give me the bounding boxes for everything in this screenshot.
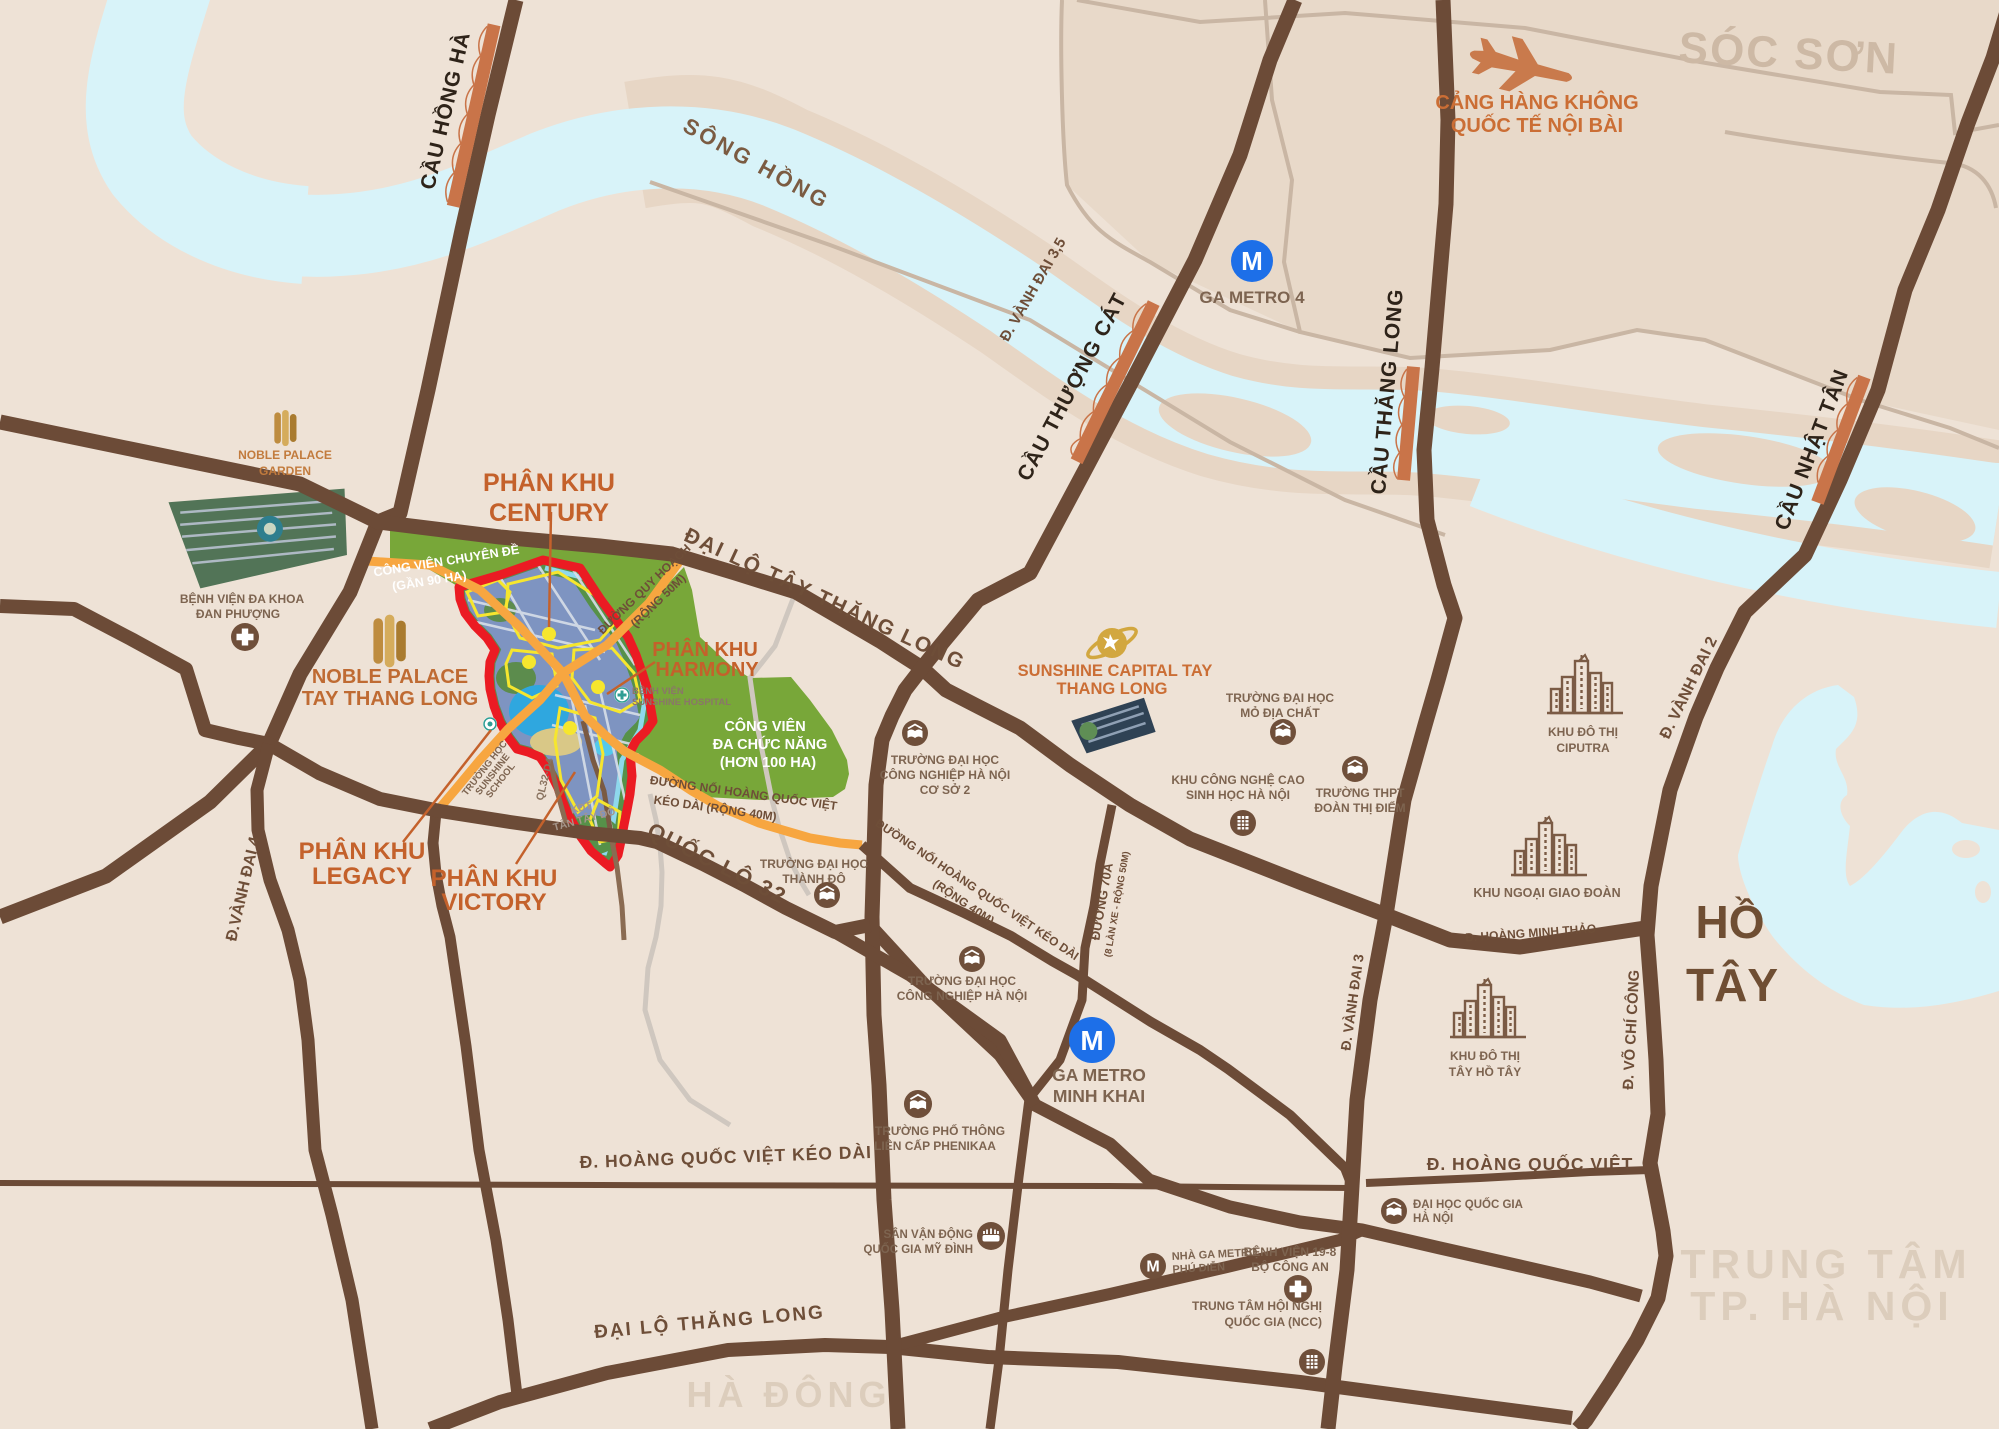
- svg-text:GA METRO: GA METRO: [1052, 1065, 1146, 1085]
- svg-text:TRUNG TÂM HỘI NGHỊ: TRUNG TÂM HỘI NGHỊ: [1192, 1298, 1322, 1313]
- svg-text:BỆNH VIỆN ĐA KHOA: BỆNH VIỆN ĐA KHOA: [180, 591, 305, 606]
- svg-text:GA METRO 4: GA METRO 4: [1199, 288, 1305, 307]
- svg-text:SINH HỌC HÀ NỘI: SINH HỌC HÀ NỘI: [1186, 787, 1290, 802]
- svg-text:CÔNG NGHIỆP HÀ NỘI: CÔNG NGHIỆP HÀ NỘI: [880, 767, 1010, 782]
- svg-text:Đ. HOÀNG QUỐC VIỆT: Đ. HOÀNG QUỐC VIỆT: [1427, 1153, 1634, 1174]
- svg-text:HÀ ĐÔNG: HÀ ĐÔNG: [687, 1373, 892, 1415]
- svg-text:ĐAN PHƯỢNG: ĐAN PHƯỢNG: [196, 607, 280, 621]
- svg-text:TÂY: TÂY: [1686, 959, 1778, 1011]
- svg-text:TRƯỜNG ĐẠI HỌC: TRƯỜNG ĐẠI HỌC: [891, 752, 1000, 767]
- svg-text:HÀ NỘI: HÀ NỘI: [1413, 1212, 1453, 1225]
- svg-text:MINH KHAI: MINH KHAI: [1053, 1086, 1145, 1106]
- svg-text:TÂY HỒ TÂY: TÂY HỒ TÂY: [1449, 1064, 1521, 1079]
- svg-text:M: M: [1146, 1259, 1159, 1276]
- svg-text:LIÊN CẤP PHENIKAA: LIÊN CẤP PHENIKAA: [874, 1138, 996, 1153]
- svg-text:ĐOÀN THỊ ĐIỂM: ĐOÀN THỊ ĐIỂM: [1314, 800, 1405, 815]
- svg-text:PHÂN KHU: PHÂN KHU: [431, 864, 558, 892]
- svg-text:TRƯỜNG ĐẠI HỌC: TRƯỜNG ĐẠI HỌC: [760, 856, 869, 871]
- svg-text:PHÚ DIỄN: PHÚ DIỄN: [1172, 1260, 1225, 1276]
- svg-text:SÂN VẬN ĐỘNG: SÂN VẬN ĐỘNG: [884, 1228, 974, 1241]
- svg-text:CÔNG VIÊN: CÔNG VIÊN: [724, 717, 805, 735]
- svg-text:TRƯỜNG THPT: TRƯỜNG THPT: [1316, 785, 1406, 800]
- svg-text:TRƯỜNG PHỐ THÔNG: TRƯỜNG PHỐ THÔNG: [875, 1123, 1005, 1138]
- svg-text:THANG LONG: THANG LONG: [1057, 680, 1168, 698]
- svg-text:CƠ SỞ 2: CƠ SỞ 2: [920, 782, 971, 797]
- svg-text:PHÂN KHU: PHÂN KHU: [299, 837, 426, 865]
- svg-text:NOBLE PALACE: NOBLE PALACE: [238, 448, 332, 462]
- svg-text:MỎ ĐỊA CHẤT: MỎ ĐỊA CHẤT: [1240, 705, 1320, 720]
- svg-text:BỘ CÔNG AN: BỘ CÔNG AN: [1251, 1259, 1329, 1274]
- svg-text:KHU ĐÔ THỊ: KHU ĐÔ THỊ: [1450, 1048, 1520, 1063]
- svg-text:CIPUTRA: CIPUTRA: [1556, 741, 1610, 755]
- svg-text:QUỐC GIA MỸ ĐÌNH: QUỐC GIA MỸ ĐÌNH: [864, 1242, 973, 1256]
- svg-text:KHU CÔNG NGHỆ CAO: KHU CÔNG NGHỆ CAO: [1171, 772, 1304, 787]
- svg-text:HỒ: HỒ: [1696, 896, 1765, 948]
- svg-text:HARMONY: HARMONY: [655, 659, 759, 681]
- svg-text:THÀNH ĐÔ: THÀNH ĐÔ: [782, 871, 845, 886]
- svg-text:GARDEN: GARDEN: [259, 464, 311, 478]
- svg-text:CẢNG HÀNG KHÔNG: CẢNG HÀNG KHÔNG: [1435, 90, 1638, 114]
- svg-text:TAY THANG LONG: TAY THANG LONG: [302, 688, 478, 710]
- svg-text:ĐẠI HỌC QUỐC GIA: ĐẠI HỌC QUỐC GIA: [1413, 1197, 1523, 1211]
- svg-text:VICTORY: VICTORY: [441, 889, 546, 916]
- svg-text:KHU NGOẠI GIAO ĐOÀN: KHU NGOẠI GIAO ĐOÀN: [1473, 885, 1620, 900]
- svg-text:M: M: [1241, 246, 1263, 276]
- svg-text:(HƠN 100 HA): (HƠN 100 HA): [720, 755, 816, 771]
- svg-text:TRUNG TÂM: TRUNG TÂM: [1681, 1241, 1972, 1287]
- svg-text:BỆNH VIỆN: BỆNH VIỆN: [632, 685, 684, 697]
- svg-text:ĐA CHỨC NĂNG: ĐA CHỨC NĂNG: [713, 735, 828, 753]
- svg-text:LEGACY: LEGACY: [312, 863, 412, 890]
- svg-text:TRƯỜNG ĐẠI HỌC: TRƯỜNG ĐẠI HỌC: [908, 973, 1017, 988]
- svg-text:TP. HÀ NỘI: TP. HÀ NỘI: [1690, 1283, 1953, 1329]
- svg-text:KHU ĐÔ THỊ: KHU ĐÔ THỊ: [1548, 724, 1618, 739]
- svg-text:M: M: [1080, 1025, 1103, 1056]
- svg-text:QUỐC TẾ NỘI BÀI: QUỐC TẾ NỘI BÀI: [1451, 113, 1623, 137]
- svg-text:PHÂN KHU: PHÂN KHU: [652, 637, 758, 661]
- svg-text:SUNSHINE CAPITAL TAY: SUNSHINE CAPITAL TAY: [1018, 662, 1213, 680]
- svg-text:SUNSHINE HOSPITAL: SUNSHINE HOSPITAL: [632, 697, 731, 708]
- svg-text:CENTURY: CENTURY: [489, 499, 609, 527]
- svg-text:TRƯỜNG ĐẠI HỌC: TRƯỜNG ĐẠI HỌC: [1226, 690, 1335, 705]
- svg-text:CÔNG NGHIỆP HÀ NỘI: CÔNG NGHIỆP HÀ NỘI: [897, 988, 1027, 1003]
- svg-text:QUỐC GIA (NCC): QUỐC GIA (NCC): [1224, 1314, 1322, 1329]
- svg-text:NOBLE PALACE: NOBLE PALACE: [312, 666, 468, 688]
- svg-text:PHÂN KHU: PHÂN KHU: [483, 467, 615, 497]
